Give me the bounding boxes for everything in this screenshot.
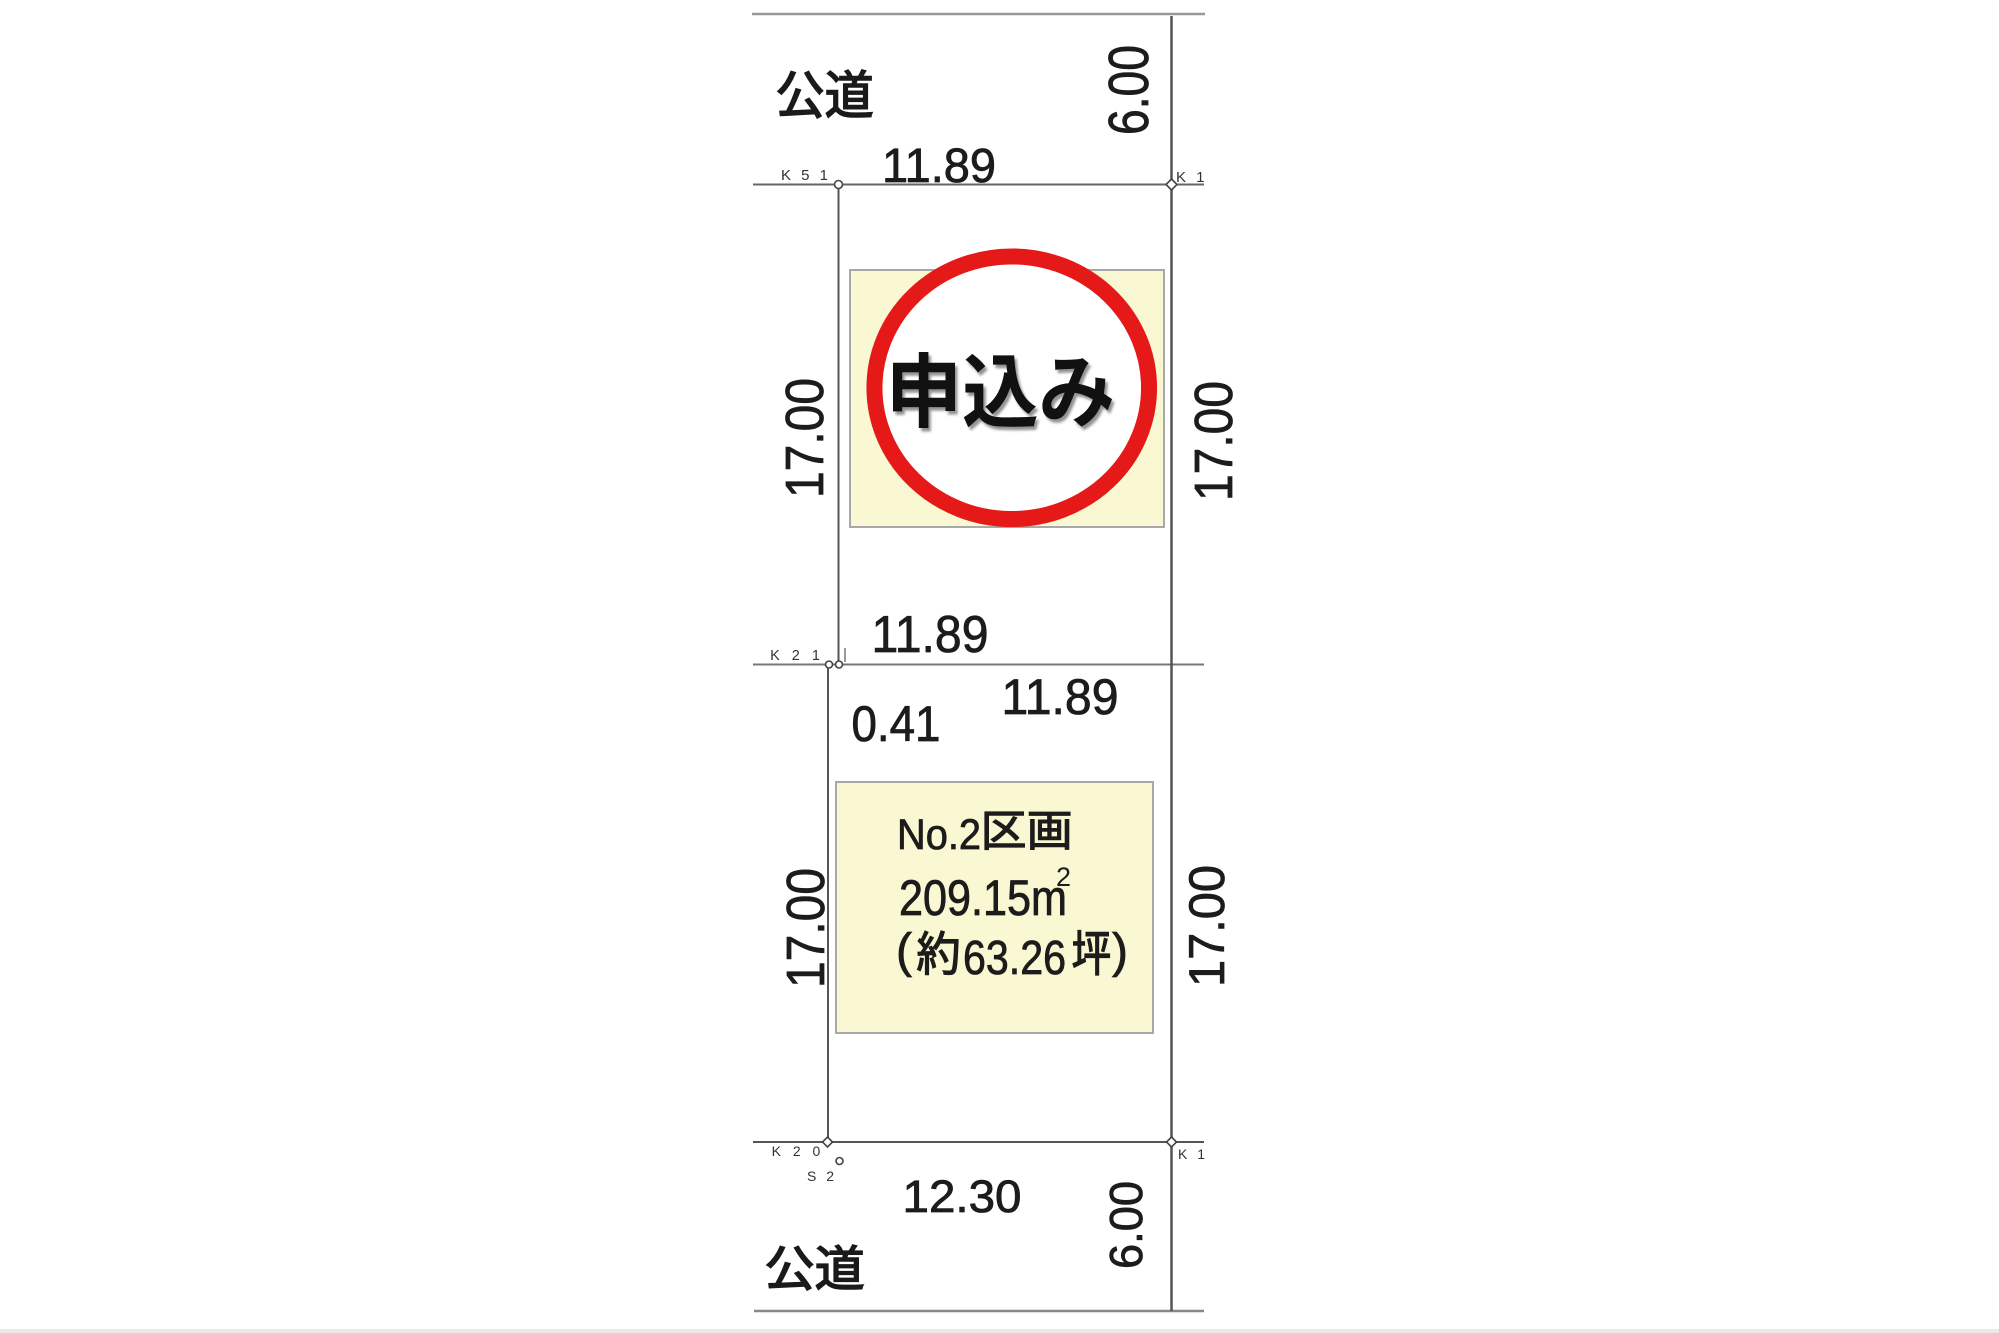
svg-text:11.89: 11.89 <box>882 140 996 193</box>
svg-text:17.00: 17.00 <box>1184 381 1244 501</box>
svg-text:K 1: K 1 <box>1176 169 1208 186</box>
svg-text:6.00: 6.00 <box>1097 45 1161 135</box>
svg-text:2: 2 <box>1056 862 1071 892</box>
svg-text:(: ( <box>896 925 912 978</box>
svg-text:K 2 0: K 2 0 <box>772 1143 825 1159</box>
svg-text:17.00: 17.00 <box>776 868 836 988</box>
svg-text:0.41: 0.41 <box>852 696 941 752</box>
svg-text:K 5 1: K 5 1 <box>781 167 831 184</box>
svg-text:K 2 1: K 2 1 <box>770 648 824 664</box>
svg-text:K 1: K 1 <box>1178 1146 1208 1162</box>
svg-text:11.89: 11.89 <box>872 606 989 664</box>
svg-text:12.30: 12.30 <box>903 1171 1022 1222</box>
svg-text:): ) <box>1112 925 1128 978</box>
svg-text:63.26: 63.26 <box>963 932 1066 985</box>
svg-text:11.89: 11.89 <box>1002 669 1119 725</box>
svg-text:S 2: S 2 <box>807 1168 837 1184</box>
svg-text:6.00: 6.00 <box>1100 1181 1152 1269</box>
svg-text:209.15m: 209.15m <box>899 870 1067 926</box>
svg-text:17.00: 17.00 <box>1179 865 1235 987</box>
svg-text:17.00: 17.00 <box>775 378 835 498</box>
svg-text:No.2: No.2 <box>897 811 981 859</box>
